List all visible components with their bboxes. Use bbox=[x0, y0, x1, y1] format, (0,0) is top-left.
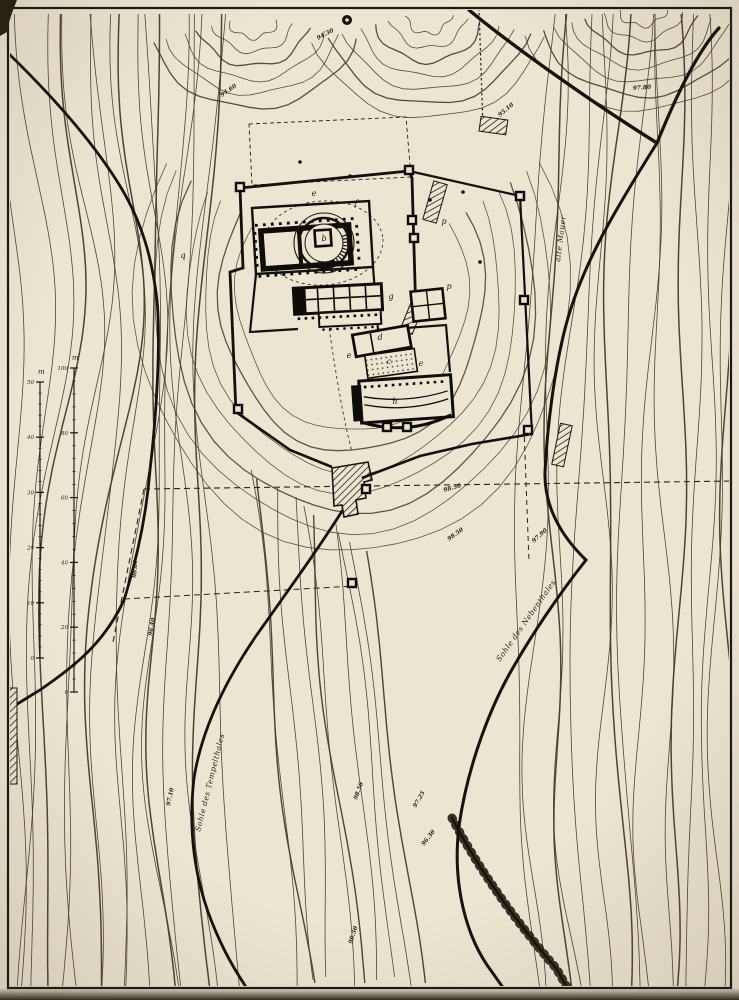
plan-letter: b bbox=[321, 234, 326, 243]
scale-bar-unit: m bbox=[38, 368, 45, 376]
stoa-column bbox=[322, 328, 325, 331]
paper-background bbox=[0, 0, 739, 1000]
elevation-label: 98.60 bbox=[132, 560, 139, 579]
photo-bottom-shadow bbox=[0, 988, 739, 1000]
stoa-column bbox=[326, 316, 329, 319]
wall-pier bbox=[383, 423, 391, 431]
theatral-column bbox=[378, 385, 381, 388]
temple-column bbox=[298, 272, 301, 275]
theatral-column bbox=[413, 382, 416, 385]
scale-bar-tick-label: 10 bbox=[27, 601, 34, 607]
scale-bar-tick-label: 60 bbox=[61, 496, 68, 502]
temple-column bbox=[351, 217, 354, 220]
east-wing-building bbox=[411, 288, 446, 321]
temple-column bbox=[274, 274, 277, 277]
scale-bar-tick-label: 20 bbox=[60, 625, 68, 631]
temple-column bbox=[266, 274, 269, 277]
stoa-column bbox=[340, 315, 343, 318]
stoa-column bbox=[343, 327, 346, 330]
stoa-column bbox=[329, 328, 332, 331]
stoa-column bbox=[312, 317, 315, 320]
temple-column bbox=[279, 222, 282, 225]
theatral-column bbox=[364, 386, 367, 389]
plan-letter: g bbox=[388, 292, 393, 301]
point-mark bbox=[461, 190, 465, 194]
theatral-column bbox=[392, 384, 395, 387]
wall-pier bbox=[405, 166, 413, 174]
stoa-column bbox=[357, 327, 360, 330]
temple-column bbox=[306, 271, 309, 274]
plan-letter: h bbox=[392, 397, 397, 406]
temple-column bbox=[282, 273, 285, 276]
ruin-north bbox=[479, 116, 508, 135]
temple-column bbox=[263, 223, 266, 226]
tholos-tick bbox=[343, 245, 349, 246]
scale-bar-tick-label: 0 bbox=[65, 690, 69, 696]
temple-column bbox=[290, 272, 293, 275]
point-mark bbox=[298, 160, 302, 164]
point-mark bbox=[348, 174, 352, 178]
stoa-column bbox=[346, 315, 349, 318]
scale-bar-tick-label: 80 bbox=[61, 431, 68, 437]
temple-column bbox=[355, 225, 358, 228]
stoa-column bbox=[319, 316, 322, 319]
temple-column bbox=[357, 249, 360, 252]
wall-pier bbox=[408, 216, 416, 224]
elevation-label: 97.80 bbox=[633, 85, 652, 92]
plan-letter: d bbox=[377, 333, 382, 342]
stoa-column bbox=[364, 326, 367, 329]
plan-letter: c bbox=[387, 357, 392, 366]
plan-letter: n bbox=[255, 271, 260, 280]
temple-column bbox=[253, 232, 256, 235]
theatral-column bbox=[385, 384, 388, 387]
scale-bar-tick-label: 30 bbox=[27, 490, 34, 496]
tholos-tick bbox=[321, 262, 322, 268]
theatral-column bbox=[399, 383, 402, 386]
stoa-column bbox=[298, 317, 301, 320]
wall-pier bbox=[516, 192, 524, 200]
stoa-column bbox=[305, 317, 308, 320]
stoa-column bbox=[374, 313, 377, 316]
wall-pier bbox=[236, 183, 244, 191]
stoa-column bbox=[333, 316, 336, 319]
scale-bar-tick-label: 100 bbox=[58, 366, 69, 372]
theatral-column bbox=[427, 381, 430, 384]
temple-column bbox=[271, 223, 274, 226]
temple-column bbox=[356, 233, 359, 236]
map-canvas: m50403020100 m100806040200 alte MauerSoh… bbox=[0, 0, 739, 1000]
wall-pier bbox=[403, 423, 411, 431]
stoa-column bbox=[360, 314, 363, 317]
scale-bar-tick-label: 20 bbox=[26, 546, 34, 552]
wall-pier bbox=[348, 579, 356, 587]
theatral-column bbox=[434, 381, 437, 384]
plan-letter: p bbox=[441, 217, 446, 226]
wall-pier bbox=[362, 485, 370, 493]
temple-column bbox=[319, 219, 322, 222]
temple-column bbox=[254, 240, 257, 243]
wall-pier bbox=[524, 426, 532, 434]
scale-bar-tick-label: 40 bbox=[60, 560, 68, 566]
scale-bar-unit: m bbox=[72, 354, 79, 362]
point-mark bbox=[478, 260, 482, 264]
plan-letter: e bbox=[312, 189, 317, 198]
scale-bar-tick-label: 0 bbox=[31, 656, 35, 662]
theatral-column bbox=[406, 383, 409, 386]
temple-column bbox=[255, 256, 258, 259]
plan-letter: q bbox=[180, 251, 185, 260]
theatral-column bbox=[441, 380, 444, 383]
temple-column bbox=[255, 224, 258, 227]
plan-letter: p bbox=[446, 282, 451, 291]
temple-column bbox=[346, 269, 349, 272]
stoa-column bbox=[350, 327, 353, 330]
wall-pier bbox=[520, 296, 528, 304]
stoa-column bbox=[353, 314, 356, 317]
site-map: m50403020100 m100806040200 alte MauerSoh… bbox=[0, 0, 739, 1000]
theatral-column bbox=[420, 382, 423, 385]
stoa-column bbox=[336, 328, 339, 331]
point-mark bbox=[428, 198, 432, 202]
wall-pier bbox=[410, 234, 418, 242]
temple-column bbox=[255, 248, 258, 251]
temple-column bbox=[357, 257, 360, 260]
plan-letter: e bbox=[419, 359, 424, 368]
temple-column bbox=[256, 264, 259, 267]
stoa-column bbox=[371, 326, 374, 329]
temple-column bbox=[356, 241, 359, 244]
scale-bar-tick-label: 40 bbox=[26, 435, 34, 441]
temple-column bbox=[287, 222, 290, 225]
temple-column bbox=[295, 221, 298, 224]
theatral-column bbox=[371, 385, 374, 388]
well-mark-center bbox=[345, 18, 349, 22]
stoa-column bbox=[367, 314, 370, 317]
wall-pier bbox=[234, 405, 242, 413]
temple-column bbox=[354, 268, 357, 271]
plan-letter: e bbox=[347, 351, 352, 360]
scale-bar-tick-label: 50 bbox=[27, 380, 34, 386]
